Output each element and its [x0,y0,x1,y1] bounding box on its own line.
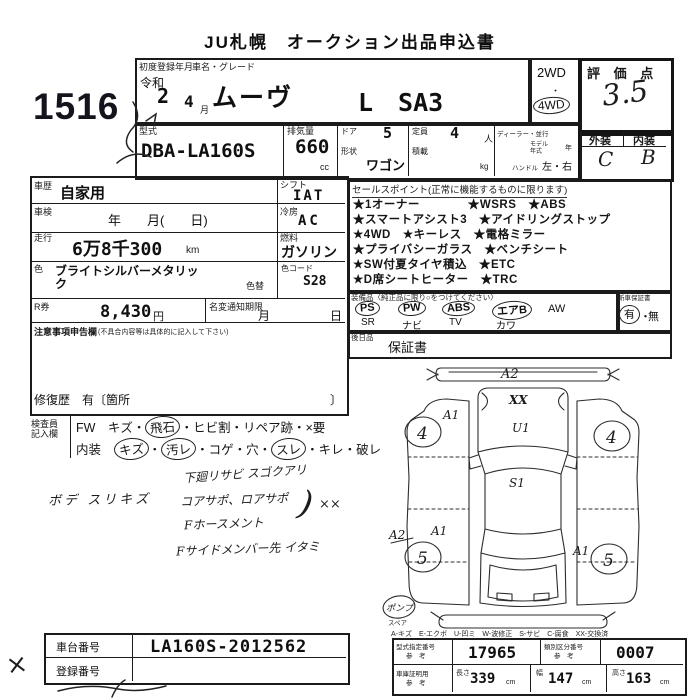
lot-squiggle-arrow [146,114,156,125]
lot-squiggle [126,102,137,152]
auction-sheet: JU札幌 オークション出品申込書 1516 初度登録年月 車名・グレード 令和 … [0,0,700,700]
bottom-scribble [58,686,166,691]
lot-squiggle-base [117,154,151,163]
pen-marks-overlay [0,0,700,700]
